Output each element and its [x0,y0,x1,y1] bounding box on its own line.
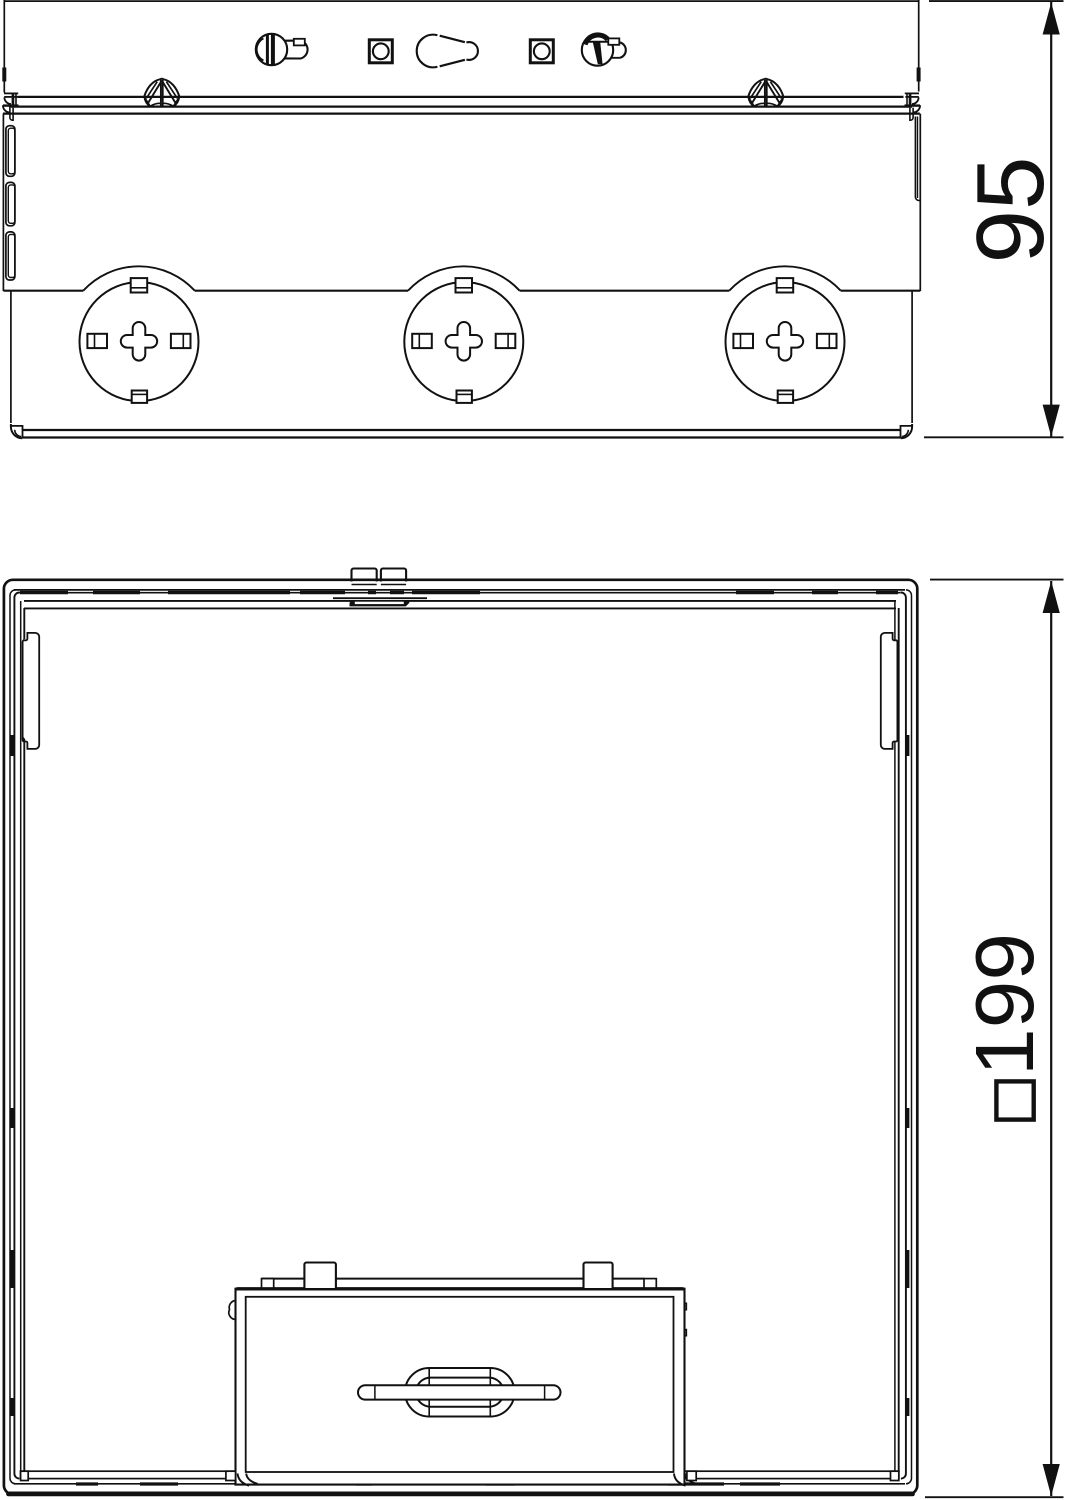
svg-text:95: 95 [957,157,1064,264]
svg-text:199: 199 [958,933,1051,1076]
